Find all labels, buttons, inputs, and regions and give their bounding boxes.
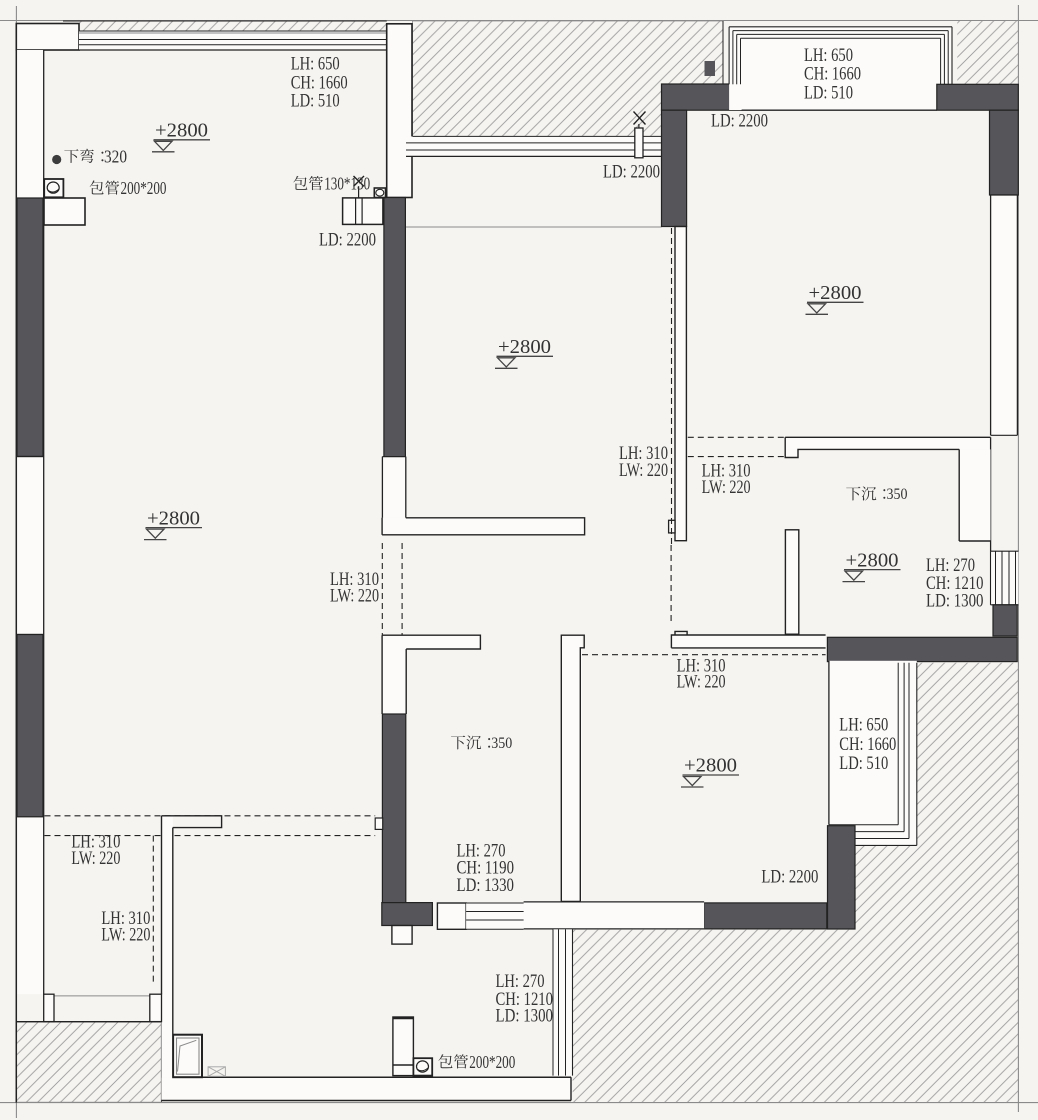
svg-text:+2800: +2800 bbox=[809, 282, 862, 304]
svg-text:+2800: +2800 bbox=[684, 755, 737, 777]
svg-text:LD: 2200: LD: 2200 bbox=[603, 162, 660, 183]
svg-text:200*200: 200*200 bbox=[469, 1052, 515, 1072]
svg-text:LD: 2200: LD: 2200 bbox=[711, 111, 768, 132]
svg-text:130*130: 130*130 bbox=[324, 174, 370, 194]
svg-text:LH: 650: LH: 650 bbox=[839, 715, 888, 736]
svg-text:LD: 2200: LD: 2200 bbox=[761, 867, 818, 888]
svg-text:LW: 220: LW: 220 bbox=[101, 924, 150, 945]
svg-text:LD: 1300: LD: 1300 bbox=[496, 1006, 554, 1027]
svg-text:200*200: 200*200 bbox=[121, 178, 167, 198]
svg-text:LW: 220: LW: 220 bbox=[677, 672, 726, 693]
svg-text:+2800: +2800 bbox=[155, 120, 208, 142]
svg-text:LD: 1300: LD: 1300 bbox=[926, 590, 984, 611]
svg-text:LD: 510: LD: 510 bbox=[804, 82, 853, 103]
svg-text:+2800: +2800 bbox=[846, 549, 899, 571]
svg-text:LD: 510: LD: 510 bbox=[839, 753, 888, 774]
svg-text:LW: 220: LW: 220 bbox=[702, 477, 751, 498]
svg-text:LW: 220: LW: 220 bbox=[330, 585, 379, 606]
svg-text:+2800: +2800 bbox=[498, 336, 551, 358]
svg-text:LD: 2200: LD: 2200 bbox=[319, 230, 376, 251]
svg-text:LW: 220: LW: 220 bbox=[619, 460, 668, 481]
svg-text:LW: 220: LW: 220 bbox=[71, 848, 120, 869]
svg-text:320: 320 bbox=[104, 147, 127, 167]
svg-text:LD: 510: LD: 510 bbox=[291, 91, 340, 112]
svg-text:350: 350 bbox=[887, 486, 908, 503]
svg-text:LD: 1330: LD: 1330 bbox=[457, 875, 515, 896]
svg-text:350: 350 bbox=[491, 735, 512, 752]
svg-text:+2800: +2800 bbox=[147, 507, 200, 529]
